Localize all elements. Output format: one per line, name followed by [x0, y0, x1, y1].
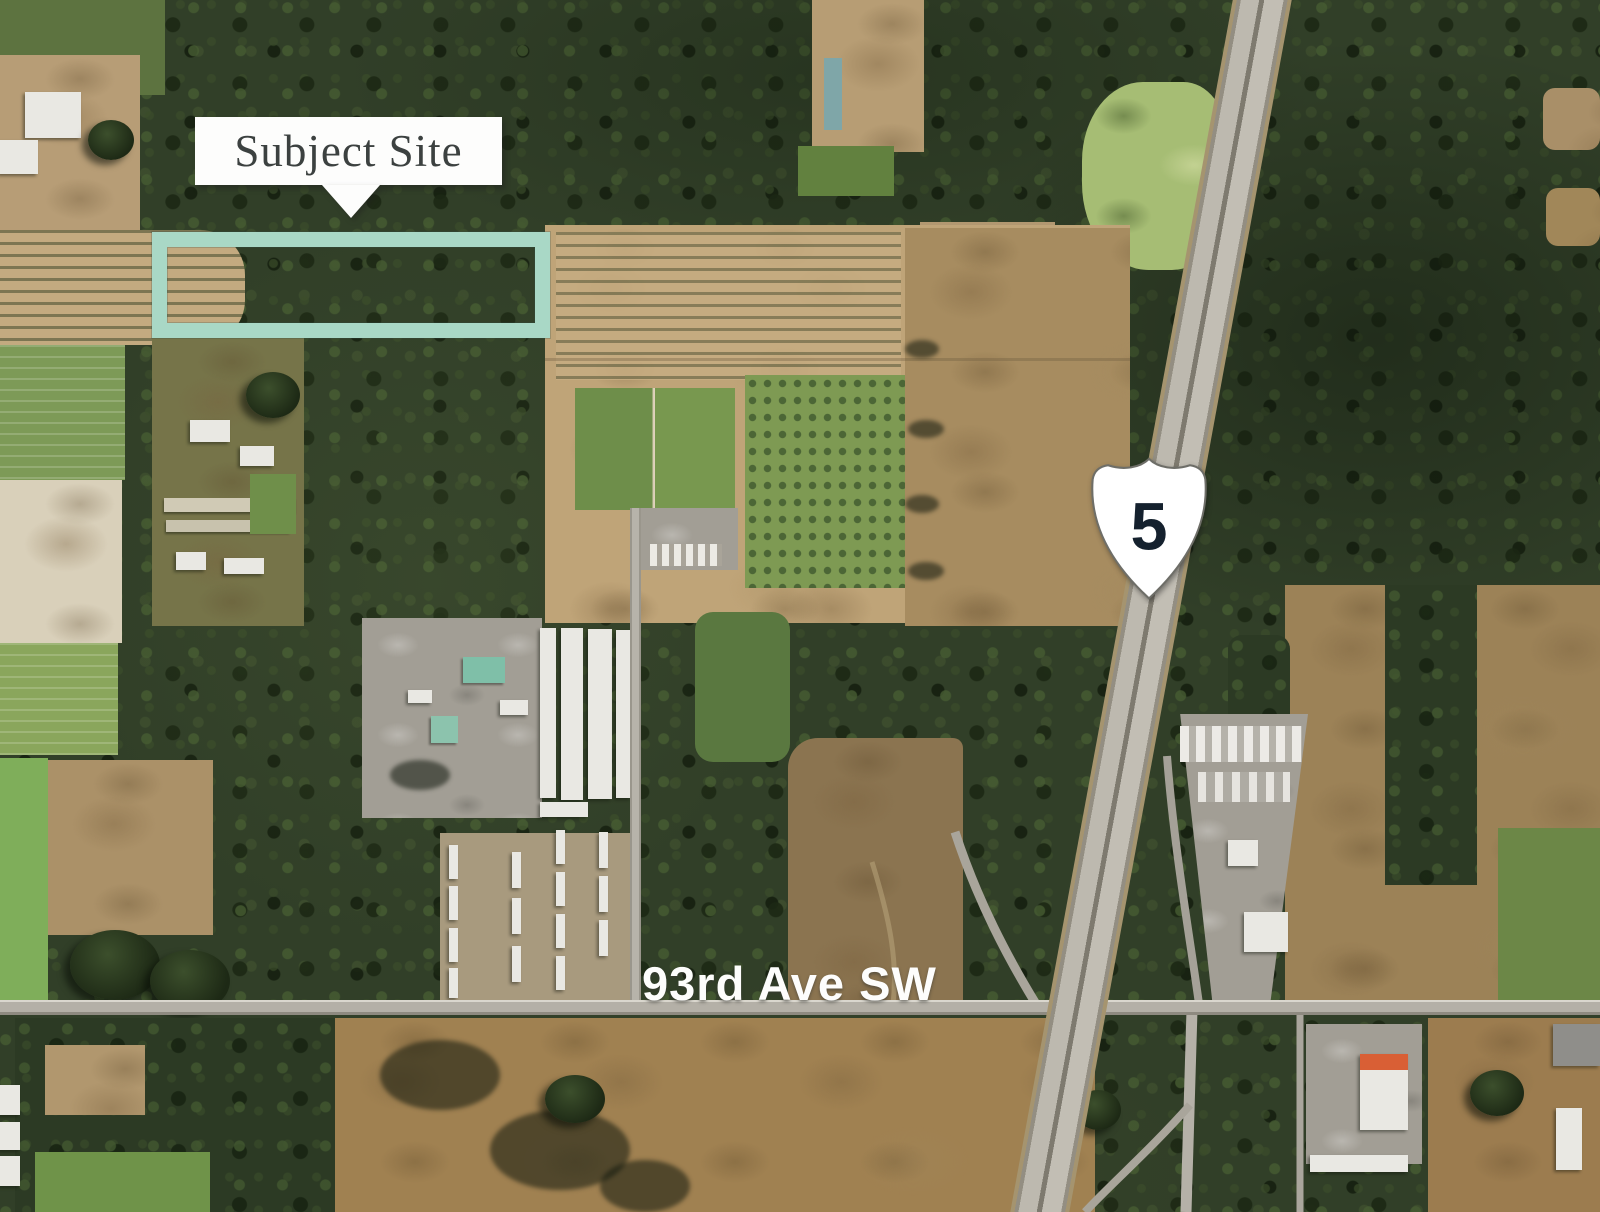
highway-ramp-road [955, 832, 1036, 1004]
shield-route-number: 5 [1130, 491, 1167, 565]
subject-site-callout: Subject Site [195, 117, 502, 218]
frontage-road [1167, 756, 1199, 1004]
road-label: 93rd Ave SW [642, 956, 937, 1011]
merge-road [1085, 1105, 1190, 1212]
callout-label: Subject Site [234, 125, 462, 177]
callout-pointer-icon [322, 185, 380, 218]
interstate-5-shield-icon: 5 [1085, 452, 1213, 604]
map-canvas: Subject Site 5 93rd Ave SW [0, 0, 1600, 1212]
subject-site-outline [152, 232, 550, 338]
callout-box: Subject Site [195, 117, 502, 185]
